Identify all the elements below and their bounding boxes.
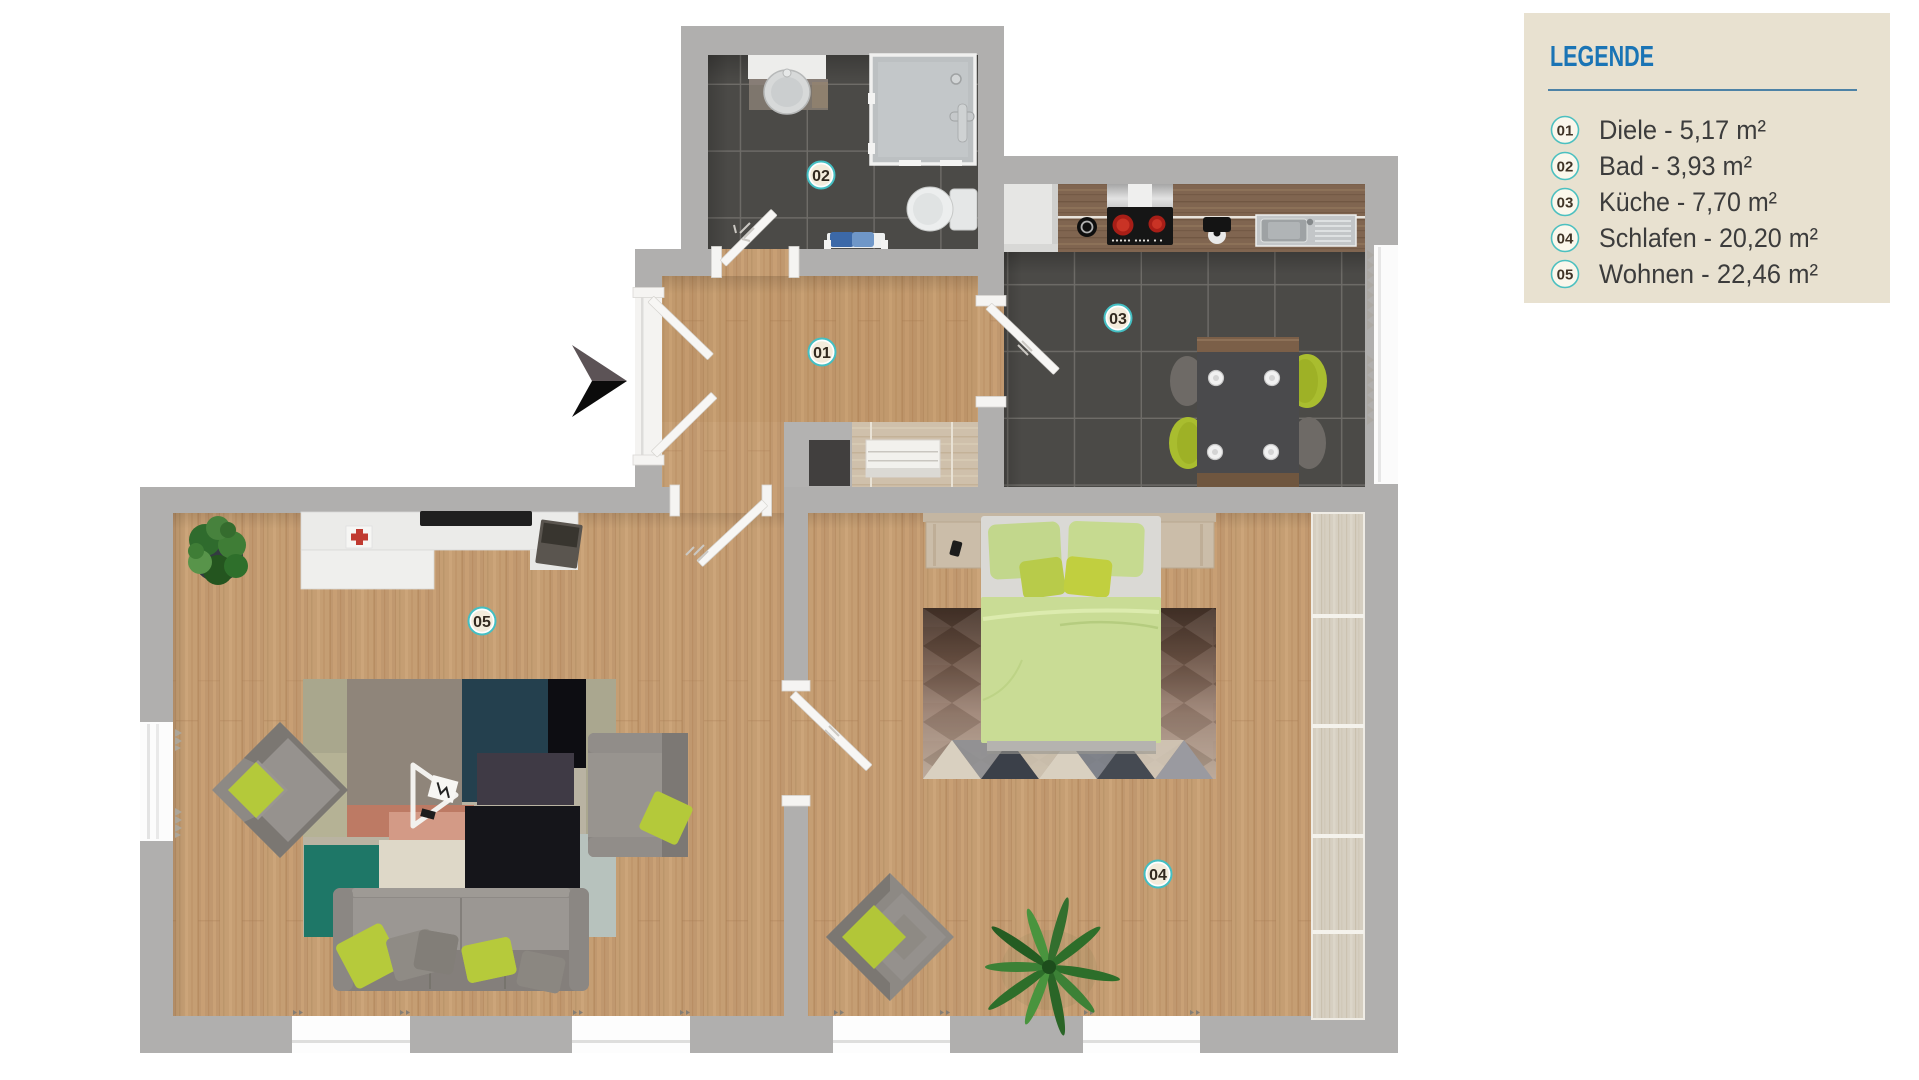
svg-text:Küche - 7,70 m²: Küche - 7,70 m² <box>1599 187 1777 217</box>
svg-text:05: 05 <box>1557 267 1574 284</box>
svg-text:Schlafen - 20,20 m²: Schlafen - 20,20 m² <box>1599 223 1818 253</box>
svg-text:02: 02 <box>1557 159 1574 176</box>
svg-text:Bad - 3,93 m²: Bad - 3,93 m² <box>1599 151 1752 181</box>
svg-text:03: 03 <box>1109 311 1127 328</box>
svg-text:04: 04 <box>1149 867 1167 884</box>
svg-text:01: 01 <box>813 345 831 362</box>
svg-text:LEGENDE: LEGENDE <box>1550 41 1654 73</box>
svg-text:02: 02 <box>812 168 830 185</box>
svg-text:Wohnen - 22,46 m²: Wohnen - 22,46 m² <box>1599 259 1818 289</box>
svg-text:05: 05 <box>473 614 491 631</box>
svg-text:01: 01 <box>1557 123 1574 140</box>
svg-text:03: 03 <box>1557 195 1574 212</box>
svg-text:Diele - 5,17 m²: Diele - 5,17 m² <box>1599 115 1766 145</box>
svg-text:04: 04 <box>1557 231 1574 248</box>
